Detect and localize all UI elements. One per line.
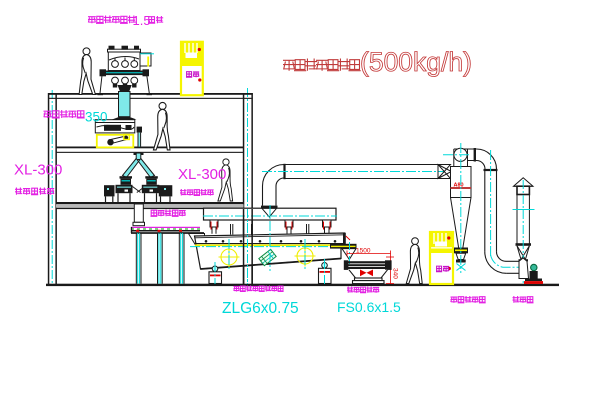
- svg-text:(500kg/h): (500kg/h): [360, 47, 472, 77]
- svg-text:A80: A80: [454, 183, 464, 189]
- svg-text:ZLG6x0.75: ZLG6x0.75: [222, 300, 299, 317]
- svg-text:FS0.6x1.5: FS0.6x1.5: [337, 299, 401, 315]
- svg-text:350: 350: [85, 110, 108, 125]
- svg-text:XL-300: XL-300: [178, 166, 226, 183]
- svg-text:1.5: 1.5: [133, 13, 151, 28]
- svg-text:340: 340: [392, 268, 399, 279]
- svg-text:1500: 1500: [356, 247, 371, 254]
- svg-text:XL-300: XL-300: [14, 162, 62, 179]
